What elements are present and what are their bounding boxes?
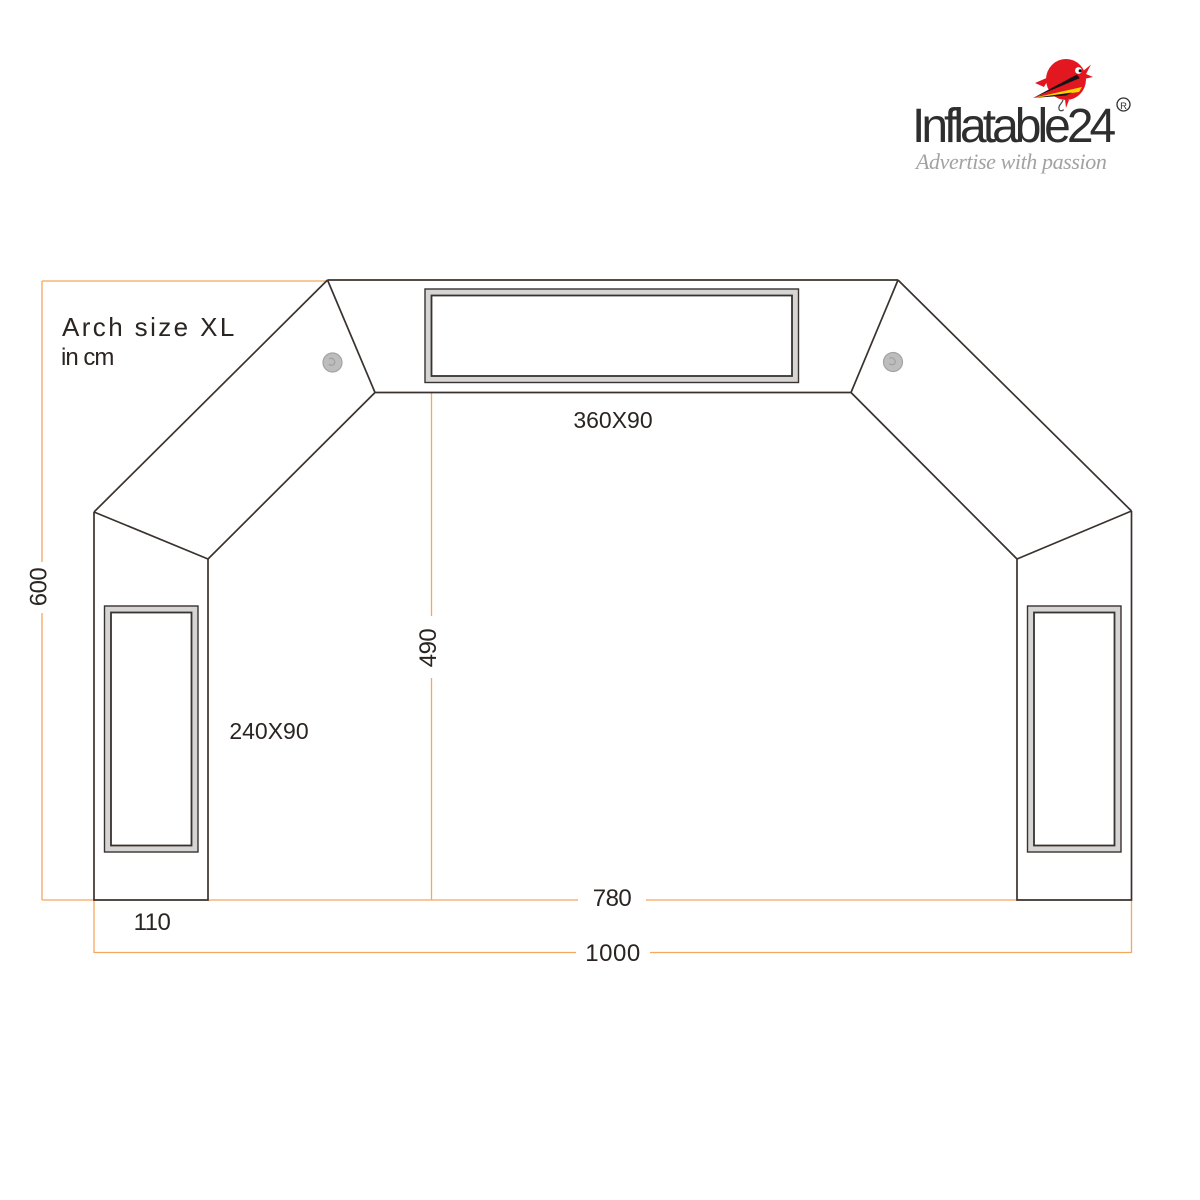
svg-text:Arch size XL: Arch size XL [62,312,237,342]
svg-text:490: 490 [415,629,442,668]
svg-text:Inflatable24: Inflatable24 [912,100,1116,153]
svg-text:1000: 1000 [585,940,640,967]
svg-text:780: 780 [593,885,632,912]
svg-text:360X90: 360X90 [573,407,652,433]
svg-text:R: R [1120,101,1127,112]
svg-text:240X90: 240X90 [229,718,308,744]
svg-text:600: 600 [26,568,53,607]
svg-text:in cm: in cm [61,344,113,371]
svg-text:110: 110 [134,909,171,936]
svg-text:Advertise with passion: Advertise with passion [914,149,1107,174]
